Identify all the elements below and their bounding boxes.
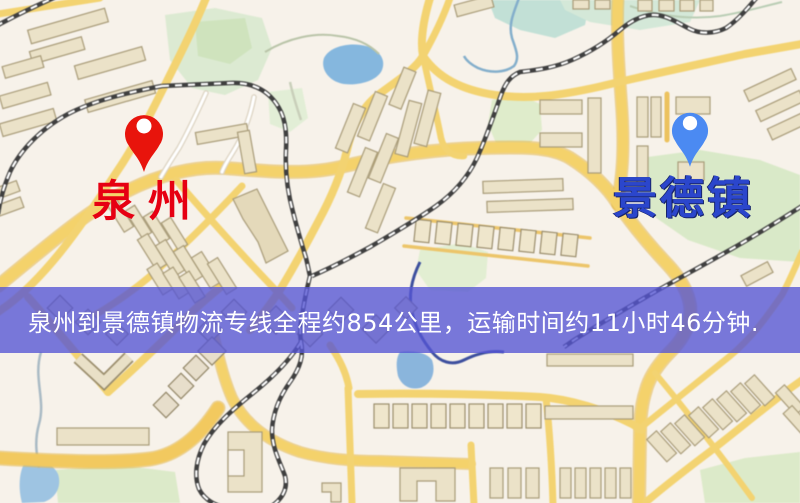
origin-pin[interactable] [125, 115, 163, 172]
map-canvas[interactable] [0, 0, 800, 503]
destination-city-label: 景德镇 [613, 177, 754, 221]
map-artwork [0, 0, 800, 503]
origin-city-label: 泉州 [92, 181, 204, 224]
route-info-text: 泉州到景德镇物流专线全程约854公里，运输时间约11小时46分钟. [28, 303, 759, 338]
destination-pin-hole [683, 116, 697, 130]
origin-pin-hole [137, 119, 152, 134]
route-info-banner: 泉州到景德镇物流专线全程约854公里，运输时间约11小时46分钟. [0, 287, 800, 353]
map-screenshot: 泉州 景德镇 泉州到景德镇物流专线全程约854公里，运输时间约11小时46分钟. [0, 0, 800, 503]
